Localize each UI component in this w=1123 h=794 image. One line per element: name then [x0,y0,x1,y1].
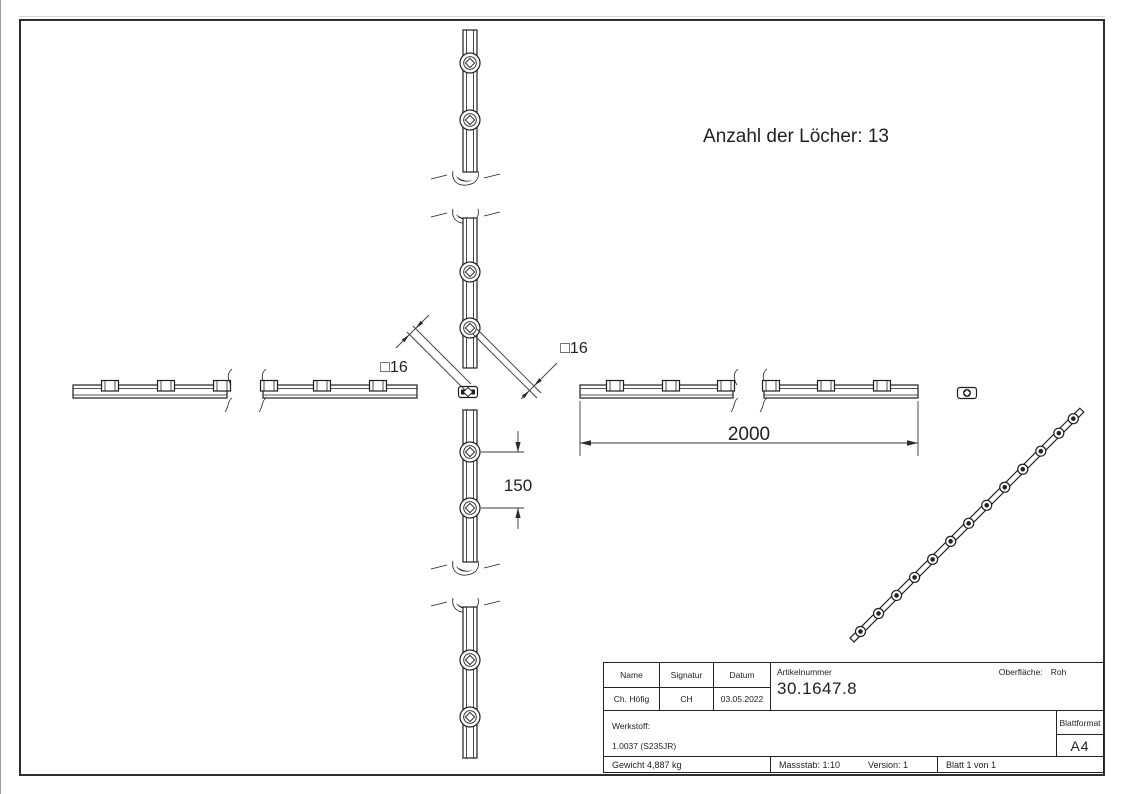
dim-length-text: 2000 [728,424,770,445]
datum-header-cell: Datum [714,663,771,688]
massstab-value: Massstab: 1:10 [779,760,840,770]
gewicht-cell: Gewicht 4,887 kg [604,757,771,772]
name-value-cell: Ch. Höfig [604,688,660,711]
datum-value-cell: 03.05.2022 [714,688,771,711]
blatt-cell: Blatt 1 von 1 [938,757,1103,772]
signatur-value-cell: CH [660,688,714,711]
isometric-view [848,407,1085,644]
werkstoff-label: Werkstoff: [612,716,650,736]
hole-count-annotation: Anzahl der Löcher: 13 [703,126,889,147]
dim-spacing-text: 150 [504,476,532,495]
title-block: Name Signatur Datum Ch. Höfig CH 03.05.2… [603,662,1104,773]
side-view-horizontal-right [580,369,918,412]
version-value: Version: 1 [868,760,908,770]
break-symbol [431,561,500,575]
signatur-header-cell: Signatur [660,663,714,688]
artikelnummer-value: 30.1647.8 [777,679,857,699]
blattformat-label-cell: Blattformat [1057,711,1103,735]
end-view-center [459,387,478,398]
artikelnummer-label: Artikelnummer [777,667,832,677]
dimension-spacing-150: 150 [481,431,532,529]
blattformat-value-cell: A4 [1057,735,1103,757]
dimension-length-2000: 2000 [580,401,918,456]
oberflaeche-label: Oberfläche: [999,667,1043,677]
werkstoff-cell: Werkstoff: 1.0037 (S235JR) [604,711,1057,757]
break-symbol [431,171,500,185]
dim-profile-right-text: □16 [560,340,588,357]
oberflaeche-value: Roh [1051,667,1067,677]
dimension-profile-left: □16 [380,315,471,390]
dimension-profile-right: □16 [473,329,588,399]
side-view-horizontal-left [73,369,417,412]
end-view-right [958,388,977,399]
artikelnummer-cell: Artikelnummer Oberfläche: Roh 30.1647.8 [771,663,1103,711]
massstab-cell: Massstab: 1:10 Version: 1 [771,757,938,772]
dim-profile-left-text: □16 [380,359,408,376]
werkstoff-value: 1.0037 (S235JR) [612,736,676,756]
name-header-cell: Name [604,663,660,688]
